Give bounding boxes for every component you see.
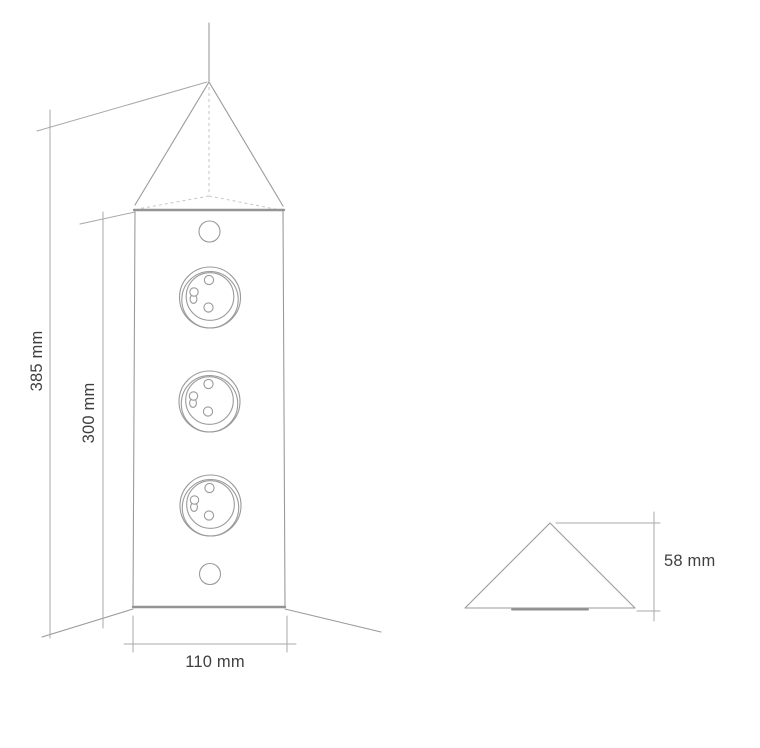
dimension-label-body-width: 110 mm — [185, 653, 245, 671]
earth-pin — [190, 288, 198, 304]
pyramid-cap — [135, 82, 283, 210]
dimension-label-overall-height: 385 mm — [28, 331, 46, 392]
cap-hidden-left-edge — [138, 196, 209, 209]
side-profile-view — [465, 523, 635, 610]
dimension-body-height: 300 mm — [80, 212, 135, 628]
earth-pin — [189, 392, 197, 408]
floor-line-right — [285, 609, 381, 632]
screw-hole-bottom — [200, 564, 221, 585]
socket-hole-bottom — [203, 407, 212, 416]
earth-pin-tip — [190, 288, 198, 296]
cap-hidden-right-edge — [209, 196, 280, 210]
earth-pin-tip — [190, 496, 198, 504]
dimension-label-body-height: 300 mm — [80, 383, 98, 444]
dimension-label-cap-height: 58 mm — [664, 552, 715, 570]
dimension-overall-height: 385 mm — [28, 82, 207, 638]
socket-hole-top — [204, 275, 213, 284]
cap-right-edge — [209, 82, 283, 206]
socket-hole-bottom — [204, 303, 213, 312]
technical-drawing: 385 mm 300 mm 110 mm 58 mm — [0, 0, 760, 748]
floor-line-left — [42, 609, 133, 637]
extension-line-top — [80, 212, 135, 224]
earth-pin — [190, 496, 198, 512]
body-left-edge — [133, 211, 135, 606]
dimension-cap-height: 58 mm — [556, 512, 715, 621]
power-socket-1 — [180, 267, 241, 328]
earth-pin-tip — [189, 392, 197, 400]
dimension-body-width: 110 mm — [124, 616, 296, 671]
screw-hole-top — [199, 221, 220, 242]
power-socket-2 — [179, 371, 240, 432]
cap-profile-triangle — [465, 523, 635, 608]
cap-left-edge — [135, 82, 209, 205]
body-right-edge — [283, 211, 285, 606]
power-socket-3 — [180, 475, 241, 536]
socket-hole-top — [204, 379, 213, 388]
drawing-canvas: 385 mm 300 mm 110 mm 58 mm — [0, 0, 760, 748]
extension-line-top — [37, 82, 207, 131]
socket-hole-bottom — [204, 511, 213, 520]
socket-hole-top — [205, 483, 214, 492]
